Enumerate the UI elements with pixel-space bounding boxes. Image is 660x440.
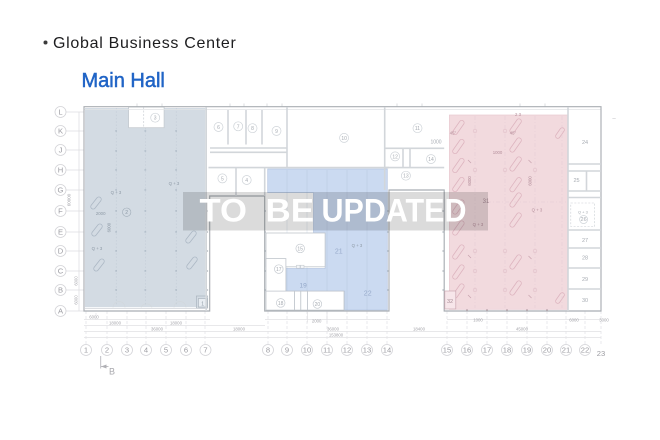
svg-text:J: J: [59, 146, 63, 155]
svg-text:4: 4: [245, 178, 248, 184]
svg-text:18400: 18400: [413, 326, 426, 331]
svg-text:2: 2: [125, 210, 128, 216]
svg-text:C: C: [58, 267, 64, 276]
svg-text:14: 14: [383, 346, 391, 355]
svg-text:15: 15: [443, 346, 451, 355]
svg-text:2000: 2000: [96, 211, 106, 216]
svg-text:1: 1: [201, 302, 204, 308]
svg-text:3: 3: [125, 346, 129, 355]
svg-text:3: 3: [154, 116, 157, 122]
svg-text:12: 12: [343, 346, 351, 355]
svg-text:23: 23: [597, 349, 605, 358]
svg-text:18000: 18000: [109, 320, 122, 325]
svg-text:30: 30: [582, 298, 588, 304]
svg-text:Q + 3: Q + 3: [352, 243, 363, 248]
svg-text:D: D: [58, 247, 64, 256]
svg-text:G: G: [58, 186, 64, 195]
svg-text:18: 18: [503, 346, 511, 355]
svg-text:2000: 2000: [312, 319, 322, 324]
svg-text:32: 32: [447, 299, 453, 305]
svg-text:16: 16: [463, 346, 471, 355]
svg-text:TO: TO: [200, 193, 248, 229]
svg-text:17: 17: [276, 267, 282, 273]
svg-text:13: 13: [403, 174, 409, 180]
svg-text:6000: 6000: [569, 318, 579, 323]
svg-text:29: 29: [582, 277, 588, 283]
svg-text:45°: 45°: [510, 131, 517, 136]
svg-text:4: 4: [144, 346, 148, 355]
svg-text:F: F: [58, 207, 63, 216]
svg-text:3000: 3000: [599, 318, 609, 323]
svg-text:Q + 3: Q + 3: [578, 209, 589, 214]
svg-text:36000: 36000: [151, 326, 164, 331]
svg-text:26: 26: [581, 217, 587, 223]
svg-text:9: 9: [275, 129, 278, 135]
svg-text:5: 5: [164, 346, 168, 355]
svg-text:Q + 3: Q + 3: [92, 246, 103, 251]
svg-text:10: 10: [303, 346, 311, 355]
svg-text:1000: 1000: [473, 318, 483, 323]
svg-text:28: 28: [582, 256, 588, 262]
svg-text:18: 18: [278, 301, 284, 307]
svg-text:22: 22: [364, 290, 372, 297]
svg-text:20: 20: [543, 346, 551, 355]
svg-text:17: 17: [483, 346, 491, 355]
svg-text:12: 12: [392, 154, 398, 160]
svg-text:18000: 18000: [170, 320, 183, 325]
svg-text:B: B: [58, 286, 63, 295]
svg-text:1000: 1000: [430, 140, 441, 146]
svg-text:13: 13: [363, 346, 371, 355]
svg-text:H: H: [58, 166, 63, 175]
svg-text:Global Business Center: Global Business Center: [53, 35, 237, 52]
svg-text:UPDATED: UPDATED: [322, 193, 467, 229]
svg-text:21: 21: [562, 346, 570, 355]
svg-text:27: 27: [582, 238, 588, 244]
svg-text:E: E: [58, 228, 63, 237]
svg-text:11: 11: [415, 126, 420, 132]
svg-text:10: 10: [341, 136, 347, 142]
svg-text:22: 22: [581, 346, 589, 355]
svg-text:6000: 6000: [528, 176, 533, 186]
svg-text:2 3: 2 3: [515, 112, 522, 117]
svg-text:60000: 60000: [67, 193, 72, 206]
svg-text:B: B: [109, 367, 115, 377]
svg-text:Q + 3: Q + 3: [111, 190, 122, 195]
svg-text:2: 2: [105, 346, 109, 355]
svg-text:6: 6: [217, 125, 220, 131]
svg-text:6000: 6000: [107, 222, 112, 232]
svg-text:14: 14: [428, 157, 434, 163]
svg-text:19: 19: [523, 346, 531, 355]
svg-text:24: 24: [582, 140, 588, 146]
svg-text:7: 7: [203, 346, 207, 355]
svg-text:9: 9: [285, 346, 289, 355]
svg-text:19: 19: [299, 282, 307, 289]
svg-text:L: L: [58, 108, 62, 117]
svg-text:Main Hall: Main Hall: [82, 70, 165, 92]
svg-text:6000: 6000: [74, 276, 79, 286]
svg-text:45000: 45000: [516, 326, 529, 331]
svg-text:BE: BE: [266, 193, 315, 229]
svg-text:153800: 153800: [329, 333, 344, 338]
svg-text:6000: 6000: [467, 176, 472, 186]
svg-text:1: 1: [84, 346, 88, 355]
svg-text:Q + 3: Q + 3: [169, 181, 180, 186]
svg-text:6: 6: [184, 346, 188, 355]
svg-text:5: 5: [221, 176, 224, 182]
svg-text:11: 11: [323, 346, 331, 355]
svg-text:6000: 6000: [74, 295, 79, 305]
svg-text:36000: 36000: [327, 326, 340, 331]
svg-text:21: 21: [335, 249, 343, 256]
svg-text:18000: 18000: [233, 326, 246, 331]
svg-text:1000: 1000: [493, 150, 503, 155]
svg-text:8: 8: [251, 126, 254, 132]
svg-text:25: 25: [573, 178, 579, 184]
svg-text:K: K: [58, 127, 63, 136]
svg-text:Q + 3: Q + 3: [532, 208, 543, 213]
svg-text:20: 20: [315, 302, 321, 308]
svg-text:6000: 6000: [89, 315, 99, 320]
svg-text:15: 15: [297, 246, 303, 252]
svg-text:7: 7: [237, 124, 240, 130]
svg-text:8: 8: [266, 346, 270, 355]
svg-text:45°: 45°: [450, 131, 457, 136]
